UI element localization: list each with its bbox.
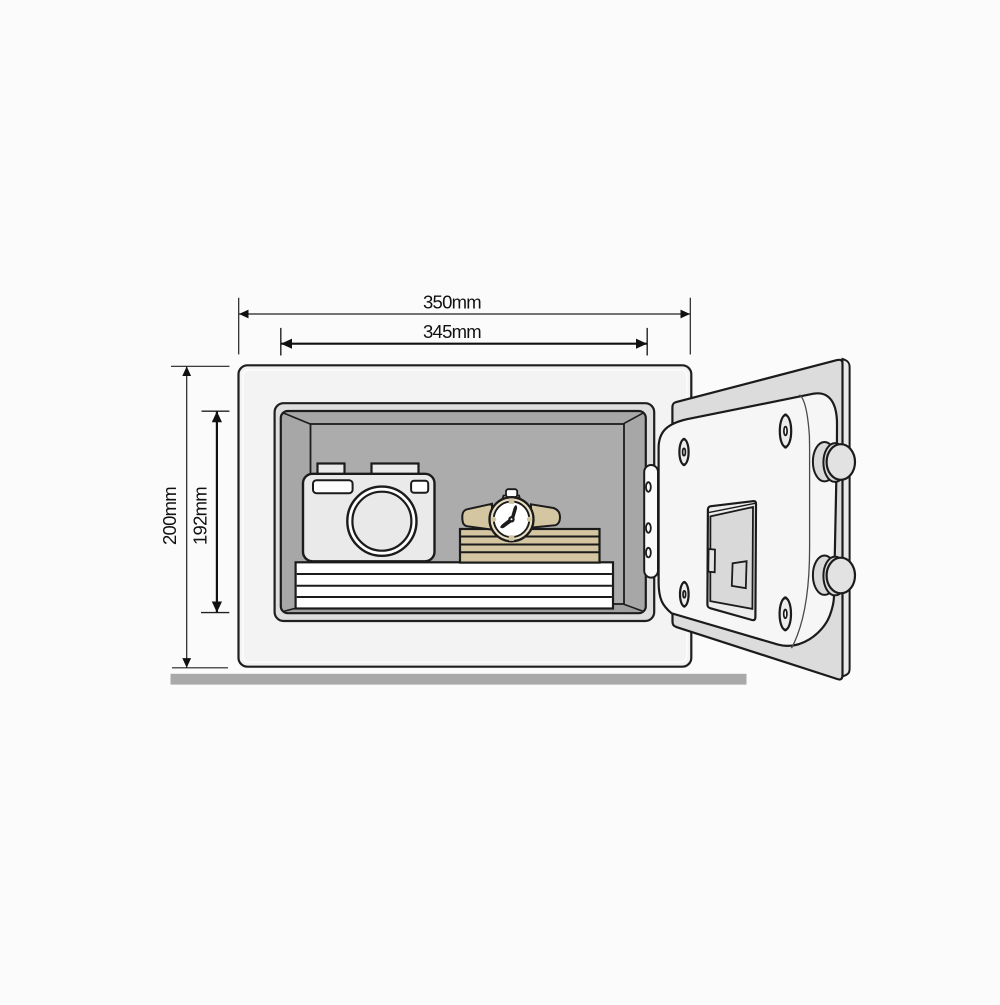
svg-text:192mm: 192mm [189,487,210,545]
svg-text:350mm: 350mm [423,292,481,313]
svg-text:345mm: 345mm [423,321,481,342]
svg-text:200mm: 200mm [159,487,180,545]
